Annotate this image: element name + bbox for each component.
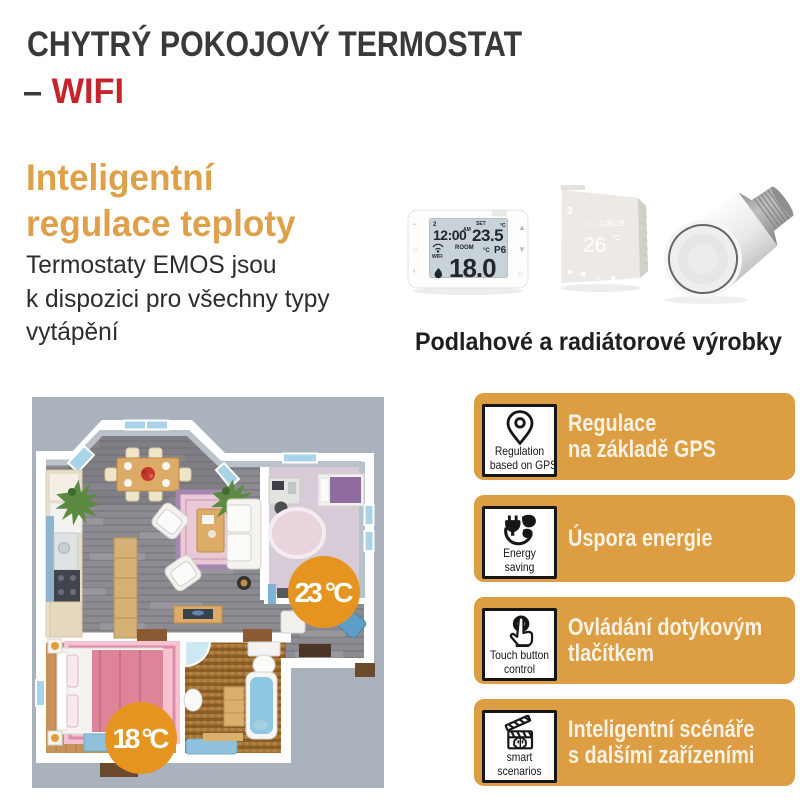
svg-text:ROOM: ROOM: [455, 245, 474, 251]
svg-text:AM: AM: [463, 227, 471, 233]
svg-text:⌂: ⌂: [518, 269, 523, 278]
svg-text:°C: °C: [612, 234, 620, 242]
svg-text:18.0: 18.0: [449, 253, 496, 283]
svg-text:18 °C: 18 °C: [113, 723, 170, 754]
svg-text:‹: ‹: [413, 266, 416, 275]
svg-text:12:00: 12:00: [433, 227, 467, 243]
svg-text:⌂: ⌂: [595, 272, 600, 282]
svg-text:○: ○: [413, 245, 418, 254]
svg-text:23.5: 23.5: [472, 226, 503, 245]
svg-text:23 °C: 23 °C: [295, 577, 354, 608]
svg-text:WIFI: WIFI: [432, 254, 443, 260]
svg-text:P6: P6: [494, 245, 507, 256]
svg-text:3: 3: [567, 206, 573, 217]
svg-text:°C: °C: [500, 223, 506, 229]
svg-text:⌂ ☼ 1:06:25: ⌂ ☼ 1:06:25: [582, 219, 626, 228]
svg-text:▼: ▼: [518, 245, 526, 254]
svg-text:26: 26: [583, 234, 606, 257]
svg-text:▲: ▲: [518, 223, 526, 232]
svg-text:ˆ: ˆ: [413, 223, 416, 232]
